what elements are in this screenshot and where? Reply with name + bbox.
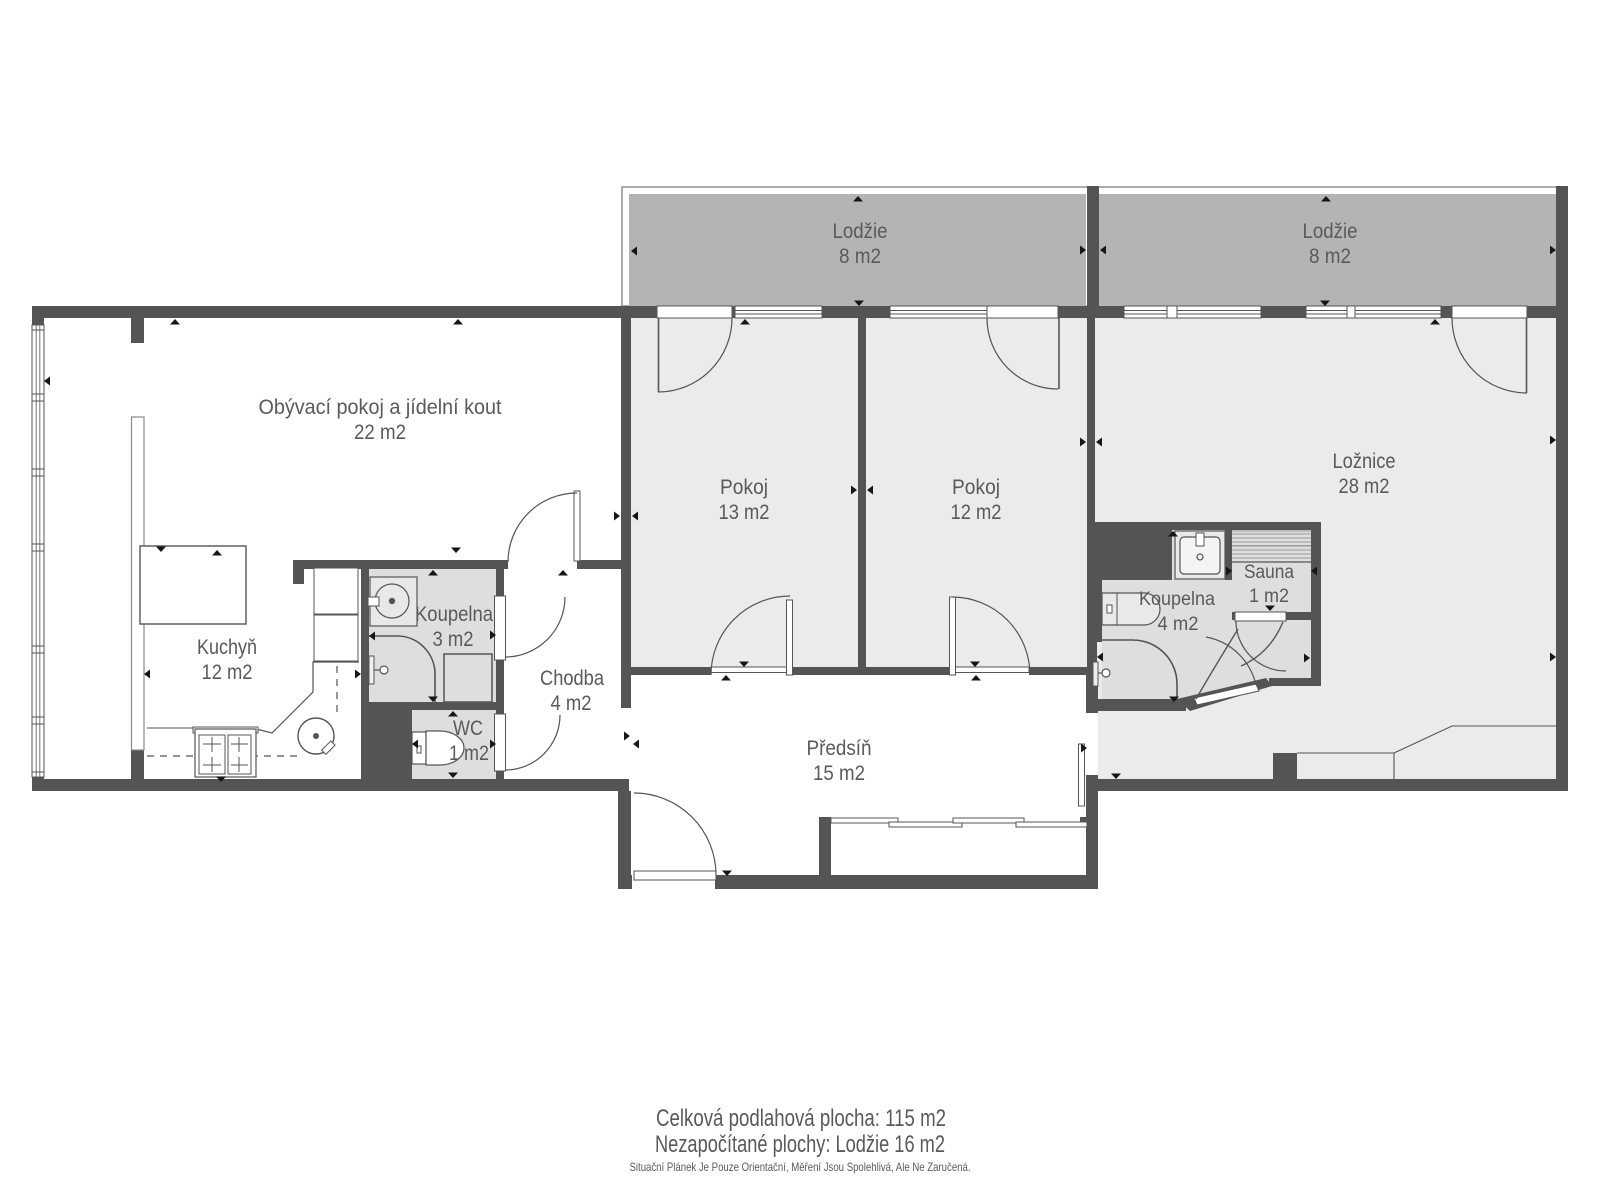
svg-text:22 m2: 22 m2 xyxy=(354,421,406,444)
svg-text:Pokoj: Pokoj xyxy=(720,476,768,499)
svg-text:Ložnice: Ložnice xyxy=(1333,450,1396,473)
svg-text:Situační Plánek Je Pouze Orien: Situační Plánek Je Pouze Orientační, Měř… xyxy=(630,1160,971,1174)
svg-text:Sauna: Sauna xyxy=(1244,562,1294,583)
svg-text:Celková podlahová plocha: 115: Celková podlahová plocha: 115 m2 xyxy=(656,1105,946,1132)
svg-text:12 m2: 12 m2 xyxy=(951,501,1002,524)
svg-text:Předsíň: Předsíň xyxy=(807,737,872,760)
svg-text:WC: WC xyxy=(453,717,483,740)
svg-text:4 m2: 4 m2 xyxy=(551,692,592,715)
svg-text:8 m2: 8 m2 xyxy=(1309,245,1351,268)
svg-text:8 m2: 8 m2 xyxy=(839,245,881,268)
svg-text:Koupelna: Koupelna xyxy=(415,603,493,626)
svg-text:4 m2: 4 m2 xyxy=(1158,614,1199,635)
svg-text:Lodžie: Lodžie xyxy=(833,220,888,243)
svg-text:Kuchyň: Kuchyň xyxy=(197,636,257,659)
svg-text:3 m2: 3 m2 xyxy=(433,628,474,651)
svg-text:28 m2: 28 m2 xyxy=(1339,475,1390,498)
svg-text:Lodžie: Lodžie xyxy=(1303,220,1358,243)
svg-text:1 m2: 1 m2 xyxy=(1249,586,1289,607)
svg-text:Obývací pokoj a jídelní kout: Obývací pokoj a jídelní kout xyxy=(259,396,502,419)
svg-text:Chodba: Chodba xyxy=(540,667,604,690)
svg-text:Pokoj: Pokoj xyxy=(952,476,1000,499)
svg-text:15 m2: 15 m2 xyxy=(813,762,865,785)
svg-text:Koupelna: Koupelna xyxy=(1139,589,1215,610)
svg-text:12 m2: 12 m2 xyxy=(202,661,253,684)
svg-text:13 m2: 13 m2 xyxy=(719,501,770,524)
svg-text:1 m2: 1 m2 xyxy=(449,742,489,765)
svg-text:Nezapočítané plochy: Lodžie 16: Nezapočítané plochy: Lodžie 16 m2 xyxy=(655,1131,945,1158)
